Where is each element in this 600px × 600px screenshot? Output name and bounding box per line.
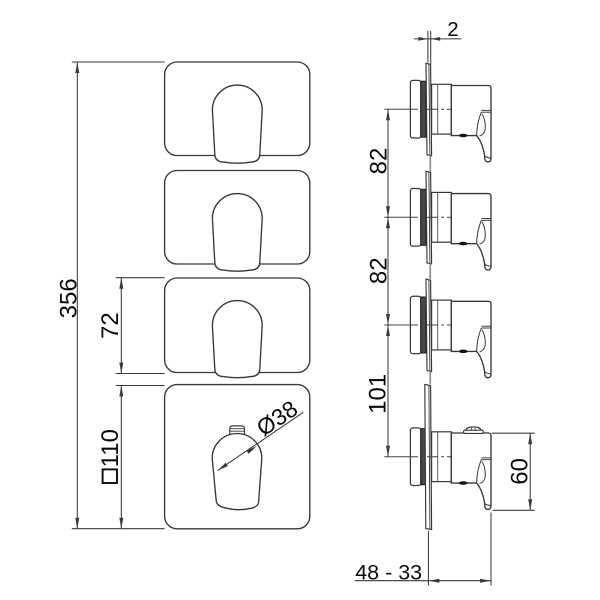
svg-text:356: 356	[55, 278, 82, 318]
svg-text:110: 110	[97, 429, 124, 467]
svg-text:82: 82	[365, 257, 392, 284]
svg-text:2: 2	[447, 18, 458, 41]
svg-text:101: 101	[364, 374, 391, 414]
svg-text:82: 82	[365, 148, 392, 175]
svg-text:48 - 33: 48 - 33	[355, 560, 422, 584]
svg-text:60: 60	[507, 458, 534, 485]
svg-text:72: 72	[97, 312, 124, 339]
